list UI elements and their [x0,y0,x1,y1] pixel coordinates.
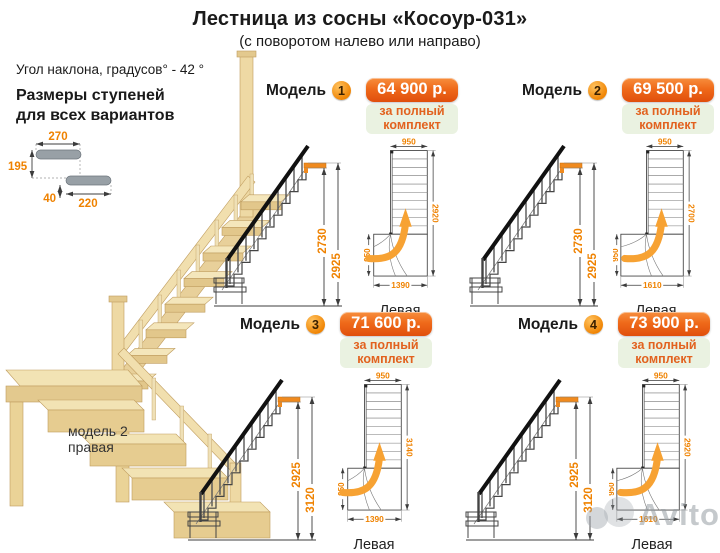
model-header: Модель 4 73 900 р. за полный комплект [462,306,716,368]
tread-top [36,150,81,159]
dim-plan-right: 2920 [682,438,692,457]
model-label: Модель 1 [266,81,351,100]
model-number-badge: 4 [584,315,603,334]
model-header: Модель 1 64 900 р. за полный комплект [210,72,464,134]
side-view-drawing: 2730 2925 [468,138,602,318]
price-block: 69 500 р. за полный комплект [622,78,714,134]
model-drawings: 2925 3120 950 [184,372,438,553]
dim-step-rise: 195 [8,161,28,173]
price-tag: 73 900 р. [618,312,710,336]
model-section-3: Модель 3 71 600 р. за полный комплект [184,306,438,553]
dim-plan-top: 950 [401,138,415,146]
model-number-badge: 3 [306,315,325,334]
direction-label: Левая [353,537,394,553]
dim-plan-right: 2700 [686,204,696,223]
price-tag: 69 500 р. [622,78,714,102]
dim-plan-right: 3140 [404,438,414,457]
handrail-line [201,380,282,494]
landing-platform [6,370,142,386]
price-note: за полный комплект [366,104,458,134]
plan-view-drawing: 950 [613,138,700,302]
dim-plan-top: 950 [653,372,667,380]
dim-height-outer: 3120 [583,487,595,513]
dim-height-inner: 2925 [291,462,303,488]
step-sizes-title: Размеры ступеней для всех вариантов [16,86,174,126]
price-block: 71 600 р. за полный комплект [340,312,432,368]
price-tag: 71 600 р. [340,312,432,336]
top-platform [278,397,300,402]
page-subtitle: (с поворотом налево или направо) [0,33,720,50]
handrail-line [479,380,560,494]
dim-height-outer: 2925 [331,253,343,279]
angle-text: Угол наклона, градусов° - 42 ° [16,62,204,77]
step-size-diagram: 270 195 40 220 [6,128,138,210]
model-header: Модель 3 71 600 р. за полный комплект [184,306,438,368]
dim-step-nose: 40 [43,193,56,205]
side-view-drawing: 2925 3120 [186,372,320,552]
plan-column: 950 [354,138,446,319]
dim-plan-bottom: 1610 [639,514,658,524]
price-block: 73 900 р. за полный комплект [618,312,710,368]
dim-step-depth-bottom: 220 [78,198,97,210]
model-header: Модель 2 69 500 р. за полный комплект [466,72,720,134]
direction-label: Левая [631,537,672,553]
plan-column: 950 [610,138,702,319]
model-number-badge: 2 [588,81,607,100]
top-platform [556,397,578,402]
dim-plan-left: 950 [613,248,620,262]
dim-height-inner: 2730 [573,228,585,254]
plan-view-drawing: 950 [331,372,418,536]
plan-column: 950 [328,372,420,553]
dim-step-depth-top: 270 [48,131,67,143]
model-drawings: 2730 2925 950 [210,138,464,319]
handrail-line [227,146,308,260]
tread-bottom [66,176,111,185]
dim-height-outer: 3120 [305,487,317,513]
dim-plan-top: 950 [657,138,671,146]
dim-plan-right: 2920 [430,204,440,223]
plan-view-drawing: 950 [357,138,444,302]
top-platform [560,163,582,168]
price-note: за полный комплект [622,104,714,134]
model-label: Модель 4 [518,315,603,334]
dim-plan-bottom: 1610 [643,280,662,290]
side-view-drawing: 2730 2925 [212,138,346,318]
model-section-2: Модель 2 69 500 р. за полный комплект [466,72,720,319]
plan-column: 950 [606,372,698,553]
price-block: 64 900 р. за полный комплект [366,78,458,134]
dim-height-outer: 2925 [587,253,599,279]
dim-height-inner: 2925 [569,462,581,488]
plan-view-drawing: 950 [609,372,696,536]
model-label: Модель 2 [522,81,607,100]
price-tag: 64 900 р. [366,78,458,102]
side-view-drawing: 2925 3120 [464,372,598,552]
model-section-4: Модель 4 73 900 р. за полный комплект [462,306,716,553]
photo-caption: модель 2 правая [68,424,128,455]
dim-height-inner: 2730 [317,228,329,254]
dim-plan-bottom: 1390 [365,514,384,524]
handrail-line [483,146,564,260]
dim-plan-left: 950 [609,482,616,496]
dim-plan-bottom: 1390 [391,280,410,290]
dim-plan-top: 950 [375,372,389,380]
title-block: Лестница из сосны «Косоур-031» (с поворо… [0,8,720,50]
model-label: Модель 3 [240,315,325,334]
model-drawings: 2730 2925 950 [466,138,720,319]
price-note: за полный комплект [618,338,710,368]
price-note: за полный комплект [340,338,432,368]
model-number-badge: 1 [332,81,351,100]
model-drawings: 2925 3120 950 [462,372,716,553]
top-platform [304,163,326,168]
model-section-1: Модель 1 64 900 р. за полный комплект [210,72,464,319]
page-title: Лестница из сосны «Косоур-031» [0,8,720,31]
